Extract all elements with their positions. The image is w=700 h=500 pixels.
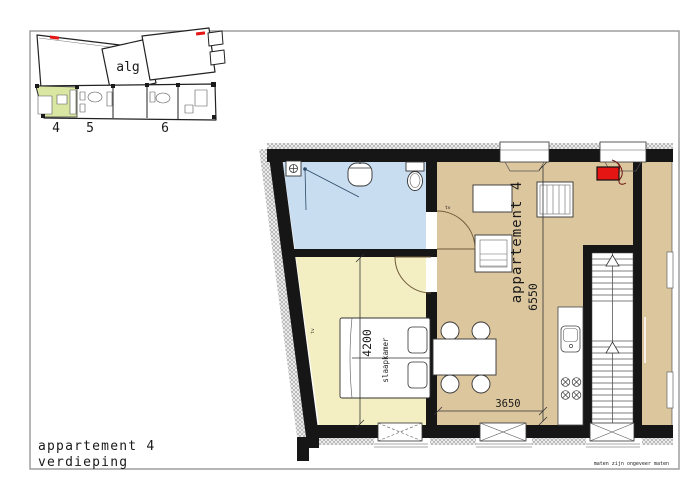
tv-label-living: tv — [445, 205, 451, 211]
facade-windows — [374, 423, 642, 448]
kitchen-counter — [558, 307, 583, 425]
overview-label-5: 5 — [86, 121, 94, 136]
overview-label-4: 4 — [52, 121, 60, 136]
living-window — [476, 423, 532, 448]
stairwell-window — [586, 423, 642, 448]
interior-wall — [426, 249, 437, 257]
vent-icon — [286, 161, 301, 176]
pillow — [408, 327, 427, 353]
toilet-icon — [406, 162, 424, 191]
dining-chair — [472, 322, 490, 340]
dim-6550: 6550 — [526, 283, 540, 311]
red-marker — [597, 167, 619, 180]
armchair — [475, 235, 512, 272]
overview-label-alg: alg — [116, 60, 139, 75]
pillow — [408, 362, 427, 388]
sink-icon — [561, 326, 580, 352]
staircase — [592, 253, 633, 425]
dining-chair — [441, 375, 459, 393]
title-apartment: appartement 4 — [38, 439, 155, 454]
floorplan-sheet: alg 4 5 6 — [0, 0, 700, 500]
dining-chair — [441, 322, 459, 340]
dining-chair — [472, 375, 490, 393]
overview-label-6: 6 — [161, 121, 169, 136]
interior-wall — [426, 162, 437, 212]
title-floor: verdieping — [38, 455, 128, 470]
dining-table — [433, 339, 496, 375]
dim-3650: 3650 — [495, 398, 520, 410]
coffee-table — [473, 185, 512, 212]
overview-room-topright — [142, 28, 215, 80]
bedroom-label: slaapkamer — [381, 337, 390, 383]
overview-annex — [208, 31, 223, 46]
floorplan-drawing: alg 4 5 6 — [0, 0, 700, 500]
disclaimer-note: maten zijn ongeveer maten — [594, 461, 669, 467]
main-plan: appartement 4 6550 3650 4200 slaapkamer … — [259, 142, 673, 461]
living-room-label: appartement 4 — [509, 181, 525, 304]
overview-annex — [210, 50, 225, 65]
dim-4200: 4200 — [360, 329, 374, 357]
stairwell-left-wall — [583, 245, 592, 425]
cabinet — [537, 182, 573, 217]
right-separation-wall — [633, 162, 642, 425]
bedroom-window — [374, 423, 430, 448]
tv-label-bedroom: tv — [310, 328, 316, 334]
